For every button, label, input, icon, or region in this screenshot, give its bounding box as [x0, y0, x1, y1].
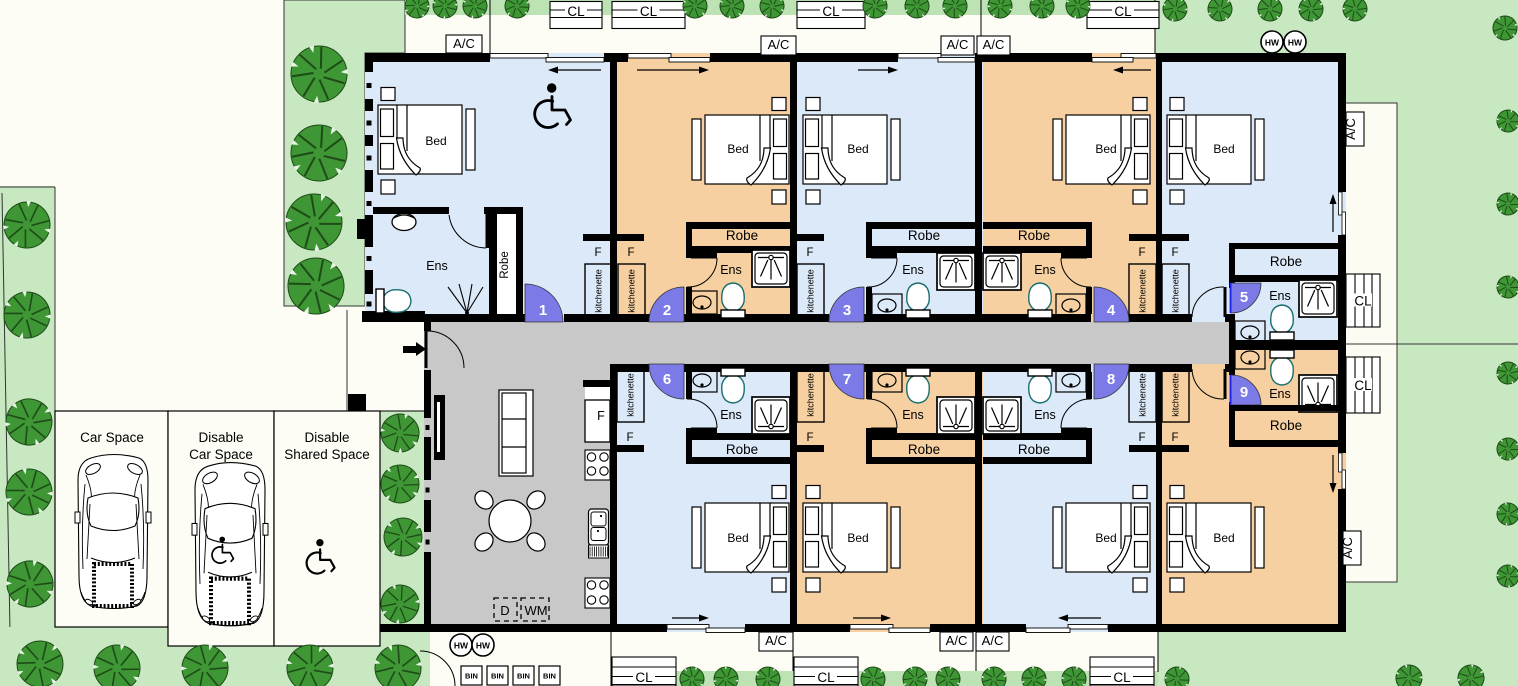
svg-text:6: 6	[663, 371, 671, 388]
svg-text:A/C: A/C	[1340, 537, 1355, 559]
svg-text:Robe: Robe	[1270, 418, 1302, 433]
svg-text:Bed: Bed	[1213, 531, 1234, 545]
svg-text:CL: CL	[822, 4, 840, 19]
svg-text:Disable: Disable	[304, 430, 349, 445]
svg-text:Bed: Bed	[1095, 531, 1116, 545]
svg-text:Ens: Ens	[1034, 408, 1056, 422]
svg-text:Ens: Ens	[1269, 387, 1291, 401]
svg-text:CL: CL	[817, 670, 835, 685]
svg-text:BIN: BIN	[543, 672, 556, 681]
svg-text:Ens: Ens	[426, 259, 448, 273]
svg-text:F: F	[806, 432, 813, 444]
svg-text:Robe: Robe	[726, 228, 758, 243]
svg-text:CL: CL	[1113, 670, 1131, 685]
svg-text:2: 2	[663, 302, 671, 319]
svg-text:1: 1	[539, 302, 547, 319]
svg-text:Bed: Bed	[847, 142, 868, 156]
svg-text:Ens: Ens	[1034, 263, 1056, 277]
svg-text:Shared Space: Shared Space	[284, 447, 370, 462]
svg-text:Robe: Robe	[908, 442, 940, 457]
svg-text:BIN: BIN	[491, 672, 504, 681]
svg-text:Ens: Ens	[902, 263, 924, 277]
svg-text:kitchenette: kitchenette	[1171, 373, 1181, 417]
svg-text:Robe: Robe	[1270, 254, 1302, 269]
svg-text:CL: CL	[1354, 378, 1372, 393]
svg-text:F: F	[627, 247, 634, 259]
svg-text:3: 3	[843, 302, 851, 319]
svg-text:CL: CL	[567, 4, 585, 19]
svg-text:CL: CL	[1354, 294, 1372, 309]
svg-text:F: F	[806, 247, 813, 259]
svg-text:CL: CL	[635, 670, 653, 685]
svg-text:9: 9	[1240, 384, 1248, 401]
svg-text:7: 7	[843, 371, 851, 388]
svg-text:BIN: BIN	[517, 672, 530, 681]
svg-text:F: F	[1171, 432, 1178, 444]
svg-text:HW: HW	[476, 641, 491, 651]
svg-text:Ens: Ens	[1269, 289, 1291, 303]
svg-text:BIN: BIN	[465, 672, 478, 681]
svg-text:F: F	[1171, 247, 1178, 259]
svg-text:F: F	[1138, 432, 1145, 444]
svg-text:kitchenette: kitchenette	[594, 269, 604, 313]
svg-text:D: D	[500, 603, 509, 618]
svg-text:4: 4	[1107, 302, 1116, 319]
svg-text:HW: HW	[454, 641, 469, 651]
svg-text:kitchenette: kitchenette	[1171, 269, 1181, 313]
svg-text:A/C: A/C	[1343, 118, 1358, 140]
svg-text:A/C: A/C	[983, 37, 1005, 52]
svg-text:A/C: A/C	[947, 37, 969, 52]
svg-text:kitchenette: kitchenette	[1138, 269, 1148, 313]
svg-text:A/C: A/C	[946, 633, 968, 648]
svg-text:kitchenette: kitchenette	[627, 269, 637, 313]
svg-text:F: F	[626, 432, 633, 444]
svg-text:Disable: Disable	[198, 430, 243, 445]
svg-text:A/C: A/C	[453, 36, 475, 51]
svg-text:kitchenette: kitchenette	[806, 269, 816, 313]
svg-text:Bed: Bed	[1213, 142, 1234, 156]
svg-text:Bed: Bed	[425, 134, 446, 148]
svg-text:F: F	[594, 247, 601, 259]
svg-text:A/C: A/C	[982, 633, 1004, 648]
svg-text:Bed: Bed	[847, 531, 868, 545]
svg-text:Bed: Bed	[1095, 142, 1116, 156]
svg-text:F: F	[1138, 247, 1145, 259]
svg-text:Bed: Bed	[727, 142, 748, 156]
svg-text:CL: CL	[1114, 4, 1132, 19]
svg-text:8: 8	[1107, 371, 1115, 388]
svg-text:A/C: A/C	[768, 37, 790, 52]
svg-text:kitchenette: kitchenette	[626, 373, 636, 417]
svg-text:Car Space: Car Space	[189, 447, 253, 462]
svg-text:5: 5	[1240, 289, 1248, 306]
svg-text:Ens: Ens	[902, 408, 924, 422]
svg-text:Robe: Robe	[1018, 442, 1050, 457]
svg-text:HW: HW	[1265, 38, 1280, 48]
svg-text:WM: WM	[524, 603, 547, 618]
svg-text:Robe: Robe	[499, 251, 511, 279]
svg-text:F: F	[597, 409, 605, 423]
svg-text:kitchenette: kitchenette	[1138, 373, 1148, 417]
svg-text:kitchenette: kitchenette	[806, 373, 816, 417]
svg-text:Bed: Bed	[727, 531, 748, 545]
svg-text:Ens: Ens	[720, 263, 742, 277]
svg-text:Robe: Robe	[908, 228, 940, 243]
svg-text:Robe: Robe	[1018, 228, 1050, 243]
svg-text:Car Space: Car Space	[80, 430, 144, 445]
svg-text:Ens: Ens	[720, 408, 742, 422]
svg-text:CL: CL	[640, 4, 658, 19]
svg-text:HW: HW	[1288, 38, 1303, 48]
svg-text:Robe: Robe	[726, 442, 758, 457]
svg-text:A/C: A/C	[765, 633, 787, 648]
